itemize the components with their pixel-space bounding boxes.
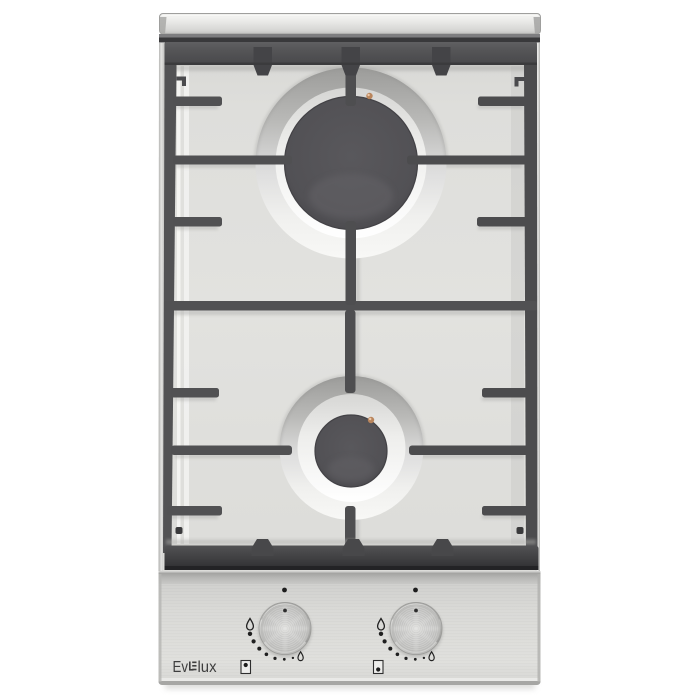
svg-text:Ev: Ev — [173, 659, 189, 676]
svg-text:lux: lux — [198, 659, 217, 676]
